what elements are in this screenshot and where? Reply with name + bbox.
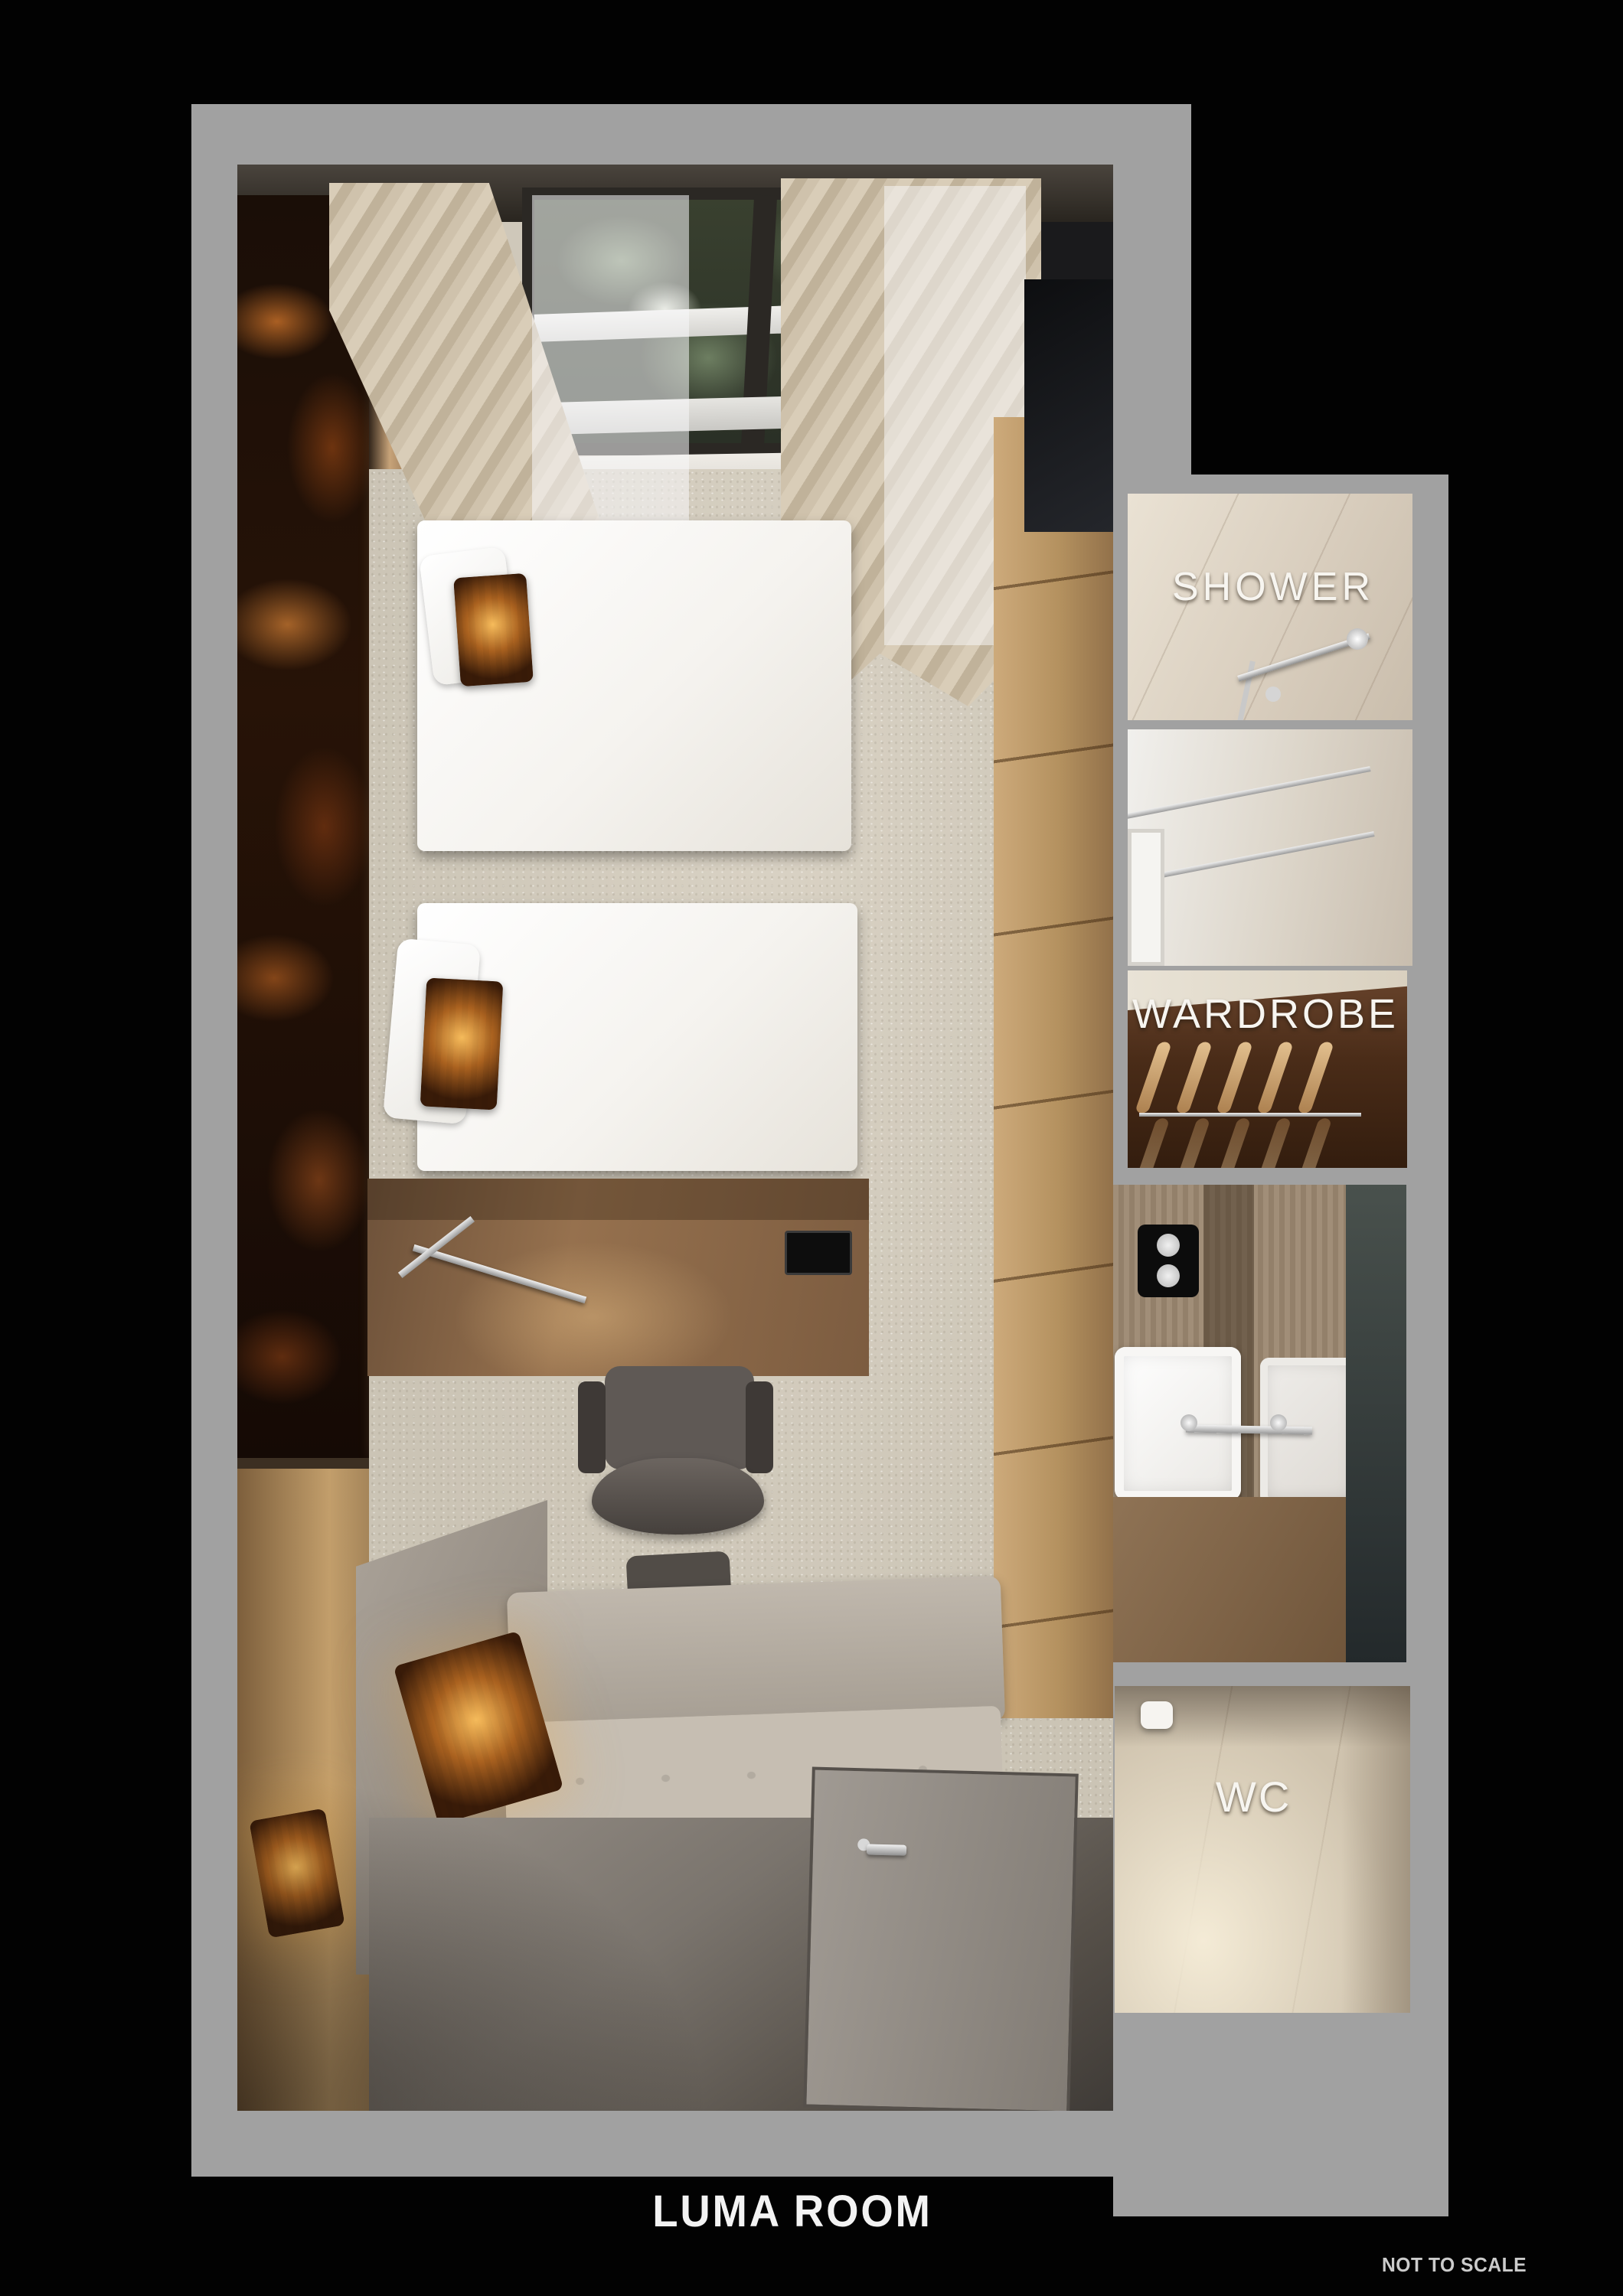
hanger [1256,1042,1294,1114]
bathroom-dark-slab [1346,1185,1406,1662]
entrance-door [803,1767,1079,2111]
shower-divider [1128,720,1412,729]
shower-valve [1265,687,1281,702]
shower-glass-zone [1128,729,1412,966]
glass-shelf-1 [1128,766,1371,820]
hanger-reflection [1218,1117,1252,1168]
shelf-edge [237,1458,369,1469]
bedroom-render [237,165,1113,2111]
shower-head [1347,628,1368,650]
hanger-reflection [1177,1117,1211,1168]
wardrobe-label: WARDROBE [1132,990,1399,1038]
hanger [1135,1042,1172,1114]
wardrobe-cabinet-wall [994,417,1113,1718]
desk-lamp-arm [413,1244,586,1303]
floorplan-canvas: SHOWER WARDROBE [0,0,1623,2296]
tv-panel [1024,279,1113,532]
bed-1 [417,520,851,851]
desk [367,1179,869,1376]
glass-shelf-2 [1128,831,1375,885]
clothes-rail [1139,1113,1361,1117]
desk-tray [785,1231,852,1275]
hanger-reflection [1299,1117,1333,1168]
faucet-knob [1270,1414,1287,1431]
desk-shelf-strip [367,1179,869,1220]
chair-armrest-left [578,1381,606,1473]
shower-render: SHOWER [1128,494,1412,966]
page-title: LUMA ROOM [652,2186,932,2237]
hanger [1297,1042,1334,1114]
toilet-flush-plate [1138,1225,1199,1297]
chair-seat [605,1366,754,1469]
corner-shadow [237,1772,712,2111]
shower-label: SHOWER [1172,564,1374,610]
hanger [1175,1042,1213,1114]
sink-1 [1115,1347,1241,1500]
scale-note: NOT TO SCALE [1382,2253,1527,2277]
bed-2-accent-cushion [420,977,504,1110]
bed-1-accent-cushion [453,573,534,687]
marble-feature-wall [237,195,369,1458]
wardrobe-render: WARDROBE [1128,970,1407,1168]
door-handle [867,1844,906,1855]
wc-wall-shadow-right [1341,1686,1410,2013]
chair-armrest-right [746,1381,773,1473]
desk-lamp-arm-2 [398,1216,475,1278]
shower-door-frame [1128,829,1164,966]
flush-button [1157,1234,1180,1257]
flush-button [1157,1264,1180,1287]
faucet-knob [1181,1414,1197,1431]
wc-render: WC [1115,1686,1410,2013]
bathroom-render [1113,1185,1406,1662]
toilet-paper-roll [1141,1701,1173,1729]
hanger [1216,1042,1253,1114]
chair-backrest [592,1458,764,1534]
hanger-reflection [1259,1117,1292,1168]
bed-2 [417,903,857,1171]
hanger-reflection [1137,1117,1171,1168]
wc-label: WC [1216,1772,1292,1821]
